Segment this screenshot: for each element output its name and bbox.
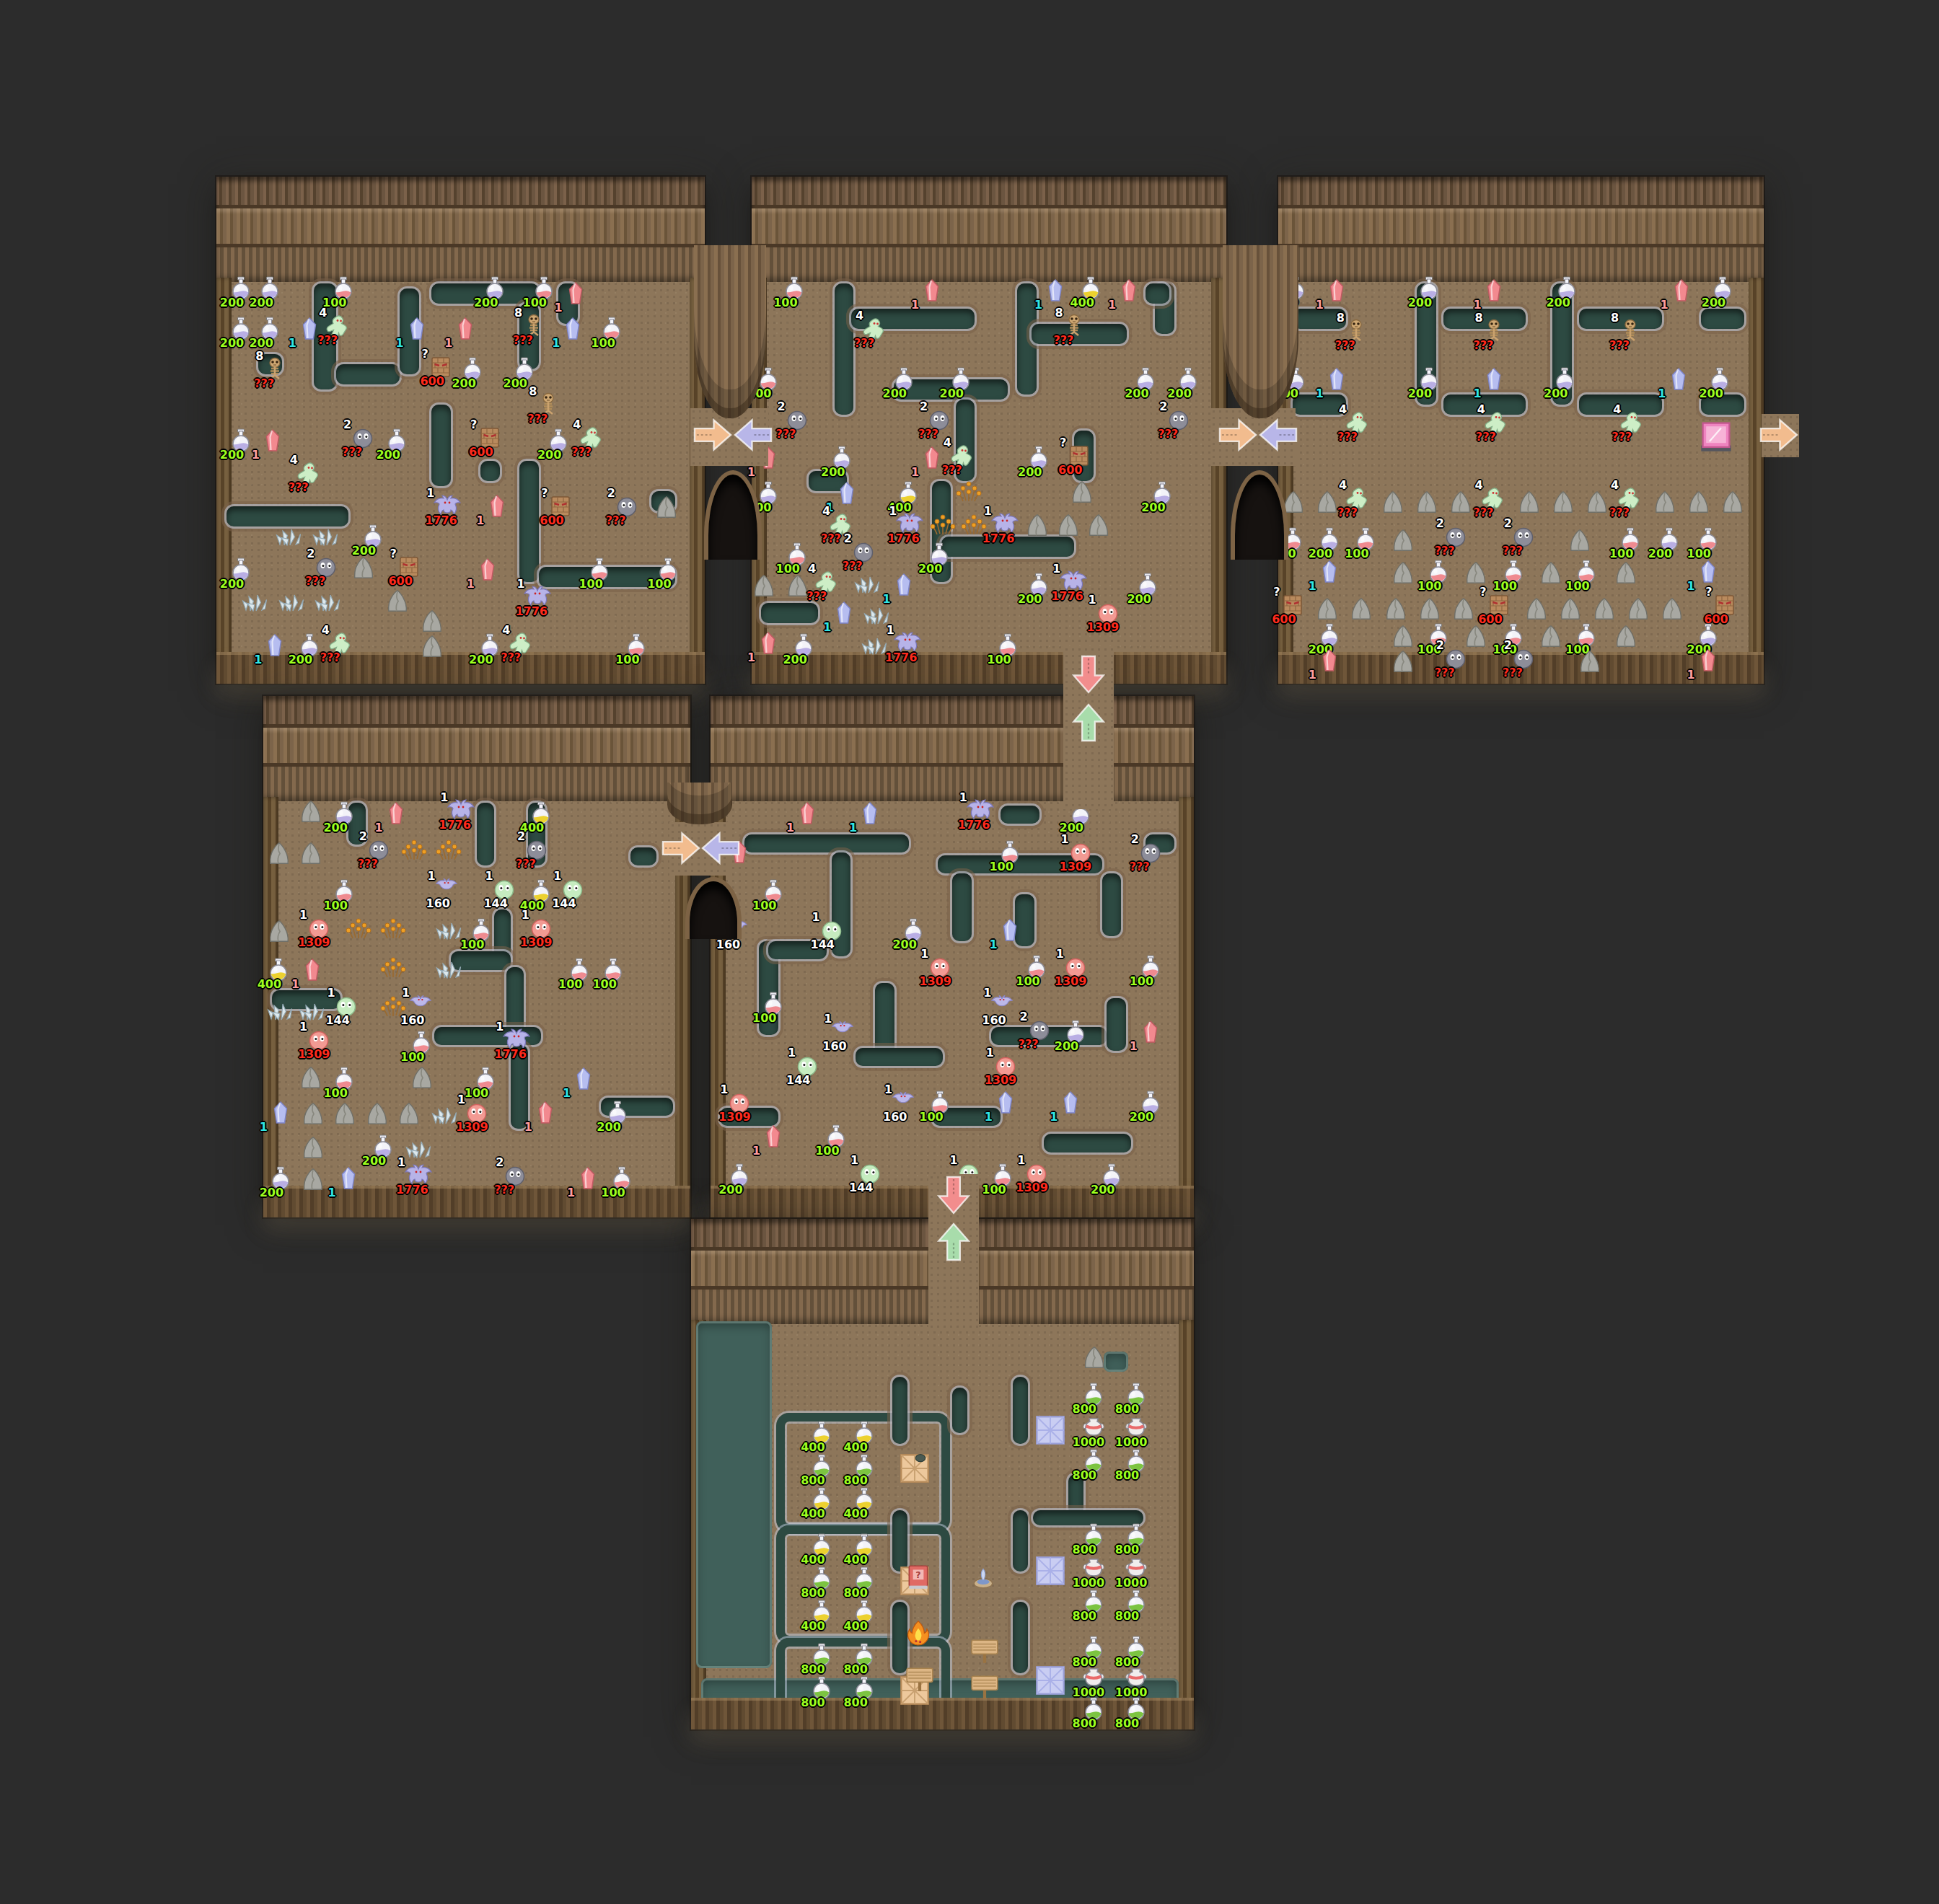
small-bat[interactable]: 1160 (830, 1019, 856, 1045)
red-crystal[interactable]: 1 (1481, 278, 1507, 304)
yellow-potion[interactable]: 400 (851, 1599, 877, 1625)
orange-mushrooms[interactable] (954, 478, 980, 504)
item-value-label: 200 (918, 563, 942, 575)
passage-arrow-left[interactable] (733, 415, 773, 455)
pink-ghost[interactable]: 11309 (1068, 839, 1094, 865)
pink-ghost[interactable]: 11309 (927, 954, 953, 980)
item-value-label: 1 (444, 338, 452, 349)
red-crystal[interactable]: 1 (299, 957, 325, 983)
item-value-label: 1 (327, 1187, 335, 1199)
passage-arrow-right[interactable] (661, 828, 701, 868)
item-value-label: 200 (1125, 388, 1148, 400)
big-bat[interactable]: 11776 (447, 798, 472, 824)
purple-potion[interactable]: 200 (891, 366, 917, 392)
wooden-sign[interactable] (905, 1665, 931, 1691)
red-potion[interactable]: 100 (600, 957, 626, 983)
red-potion[interactable]: 100 (1500, 559, 1526, 585)
blue-crystal[interactable]: 1 (831, 600, 857, 626)
red-crystal[interactable]: 1 (383, 801, 409, 827)
item-value-label: 800 (1073, 1403, 1096, 1415)
pink-ghost[interactable]: 11309 (726, 1090, 752, 1116)
red-crystal[interactable]: 1 (919, 278, 945, 304)
green-potion[interactable]: 800 (1081, 1589, 1107, 1615)
red-crystal[interactable]: 1 (1695, 648, 1721, 674)
red-potion[interactable]: 100 (586, 557, 612, 583)
item-value-label: 1 (849, 822, 857, 834)
zombie[interactable]: 4??? (1619, 410, 1645, 436)
rock (350, 554, 376, 580)
red-crystal[interactable]: 1 (563, 281, 589, 307)
red-crystal[interactable]: 1 (484, 493, 510, 519)
crystal-cluster[interactable] (313, 587, 339, 613)
zombie[interactable]: 4??? (1484, 410, 1510, 436)
red-potion[interactable]: 100 (781, 276, 807, 301)
green-potion[interactable]: 800 (809, 1675, 835, 1701)
purple-potion[interactable]: 200 (1135, 572, 1161, 598)
purple-potion[interactable]: 200 (360, 524, 386, 550)
big-bat[interactable]: 11776 (523, 584, 549, 610)
crystal-cluster[interactable] (860, 630, 886, 656)
red-potion[interactable]: 100 (1138, 954, 1164, 980)
red-jar[interactable]: 1000 (1081, 1556, 1107, 1582)
purple-potion[interactable]: 200 (829, 445, 855, 471)
purple-potion[interactable]: 200 (228, 557, 254, 583)
purple-potion[interactable]: 200 (1554, 276, 1580, 301)
big-bat[interactable]: 11776 (966, 798, 992, 824)
rock (1389, 559, 1415, 585)
red-crystal[interactable]: 1 (260, 428, 286, 454)
rock (1389, 648, 1415, 674)
palisade-band (711, 728, 1194, 767)
red-potion[interactable]: 100 (609, 1165, 635, 1191)
purple-potion[interactable]: 200 (755, 480, 781, 506)
item-value-label: 100 (592, 979, 616, 990)
crystal-cluster[interactable] (311, 521, 337, 547)
green-potion[interactable]: 800 (1081, 1635, 1107, 1661)
green-slime[interactable]: 1144 (794, 1053, 820, 1079)
red-potion[interactable]: 100 (760, 878, 786, 904)
purple-potion[interactable]: 200 (1656, 526, 1682, 552)
green-slime[interactable]: 1144 (491, 876, 517, 902)
green-potion[interactable]: 800 (809, 1453, 835, 1479)
pink-ghost[interactable]: 11309 (528, 915, 554, 941)
red-crystal[interactable]: 1 (452, 316, 478, 342)
item-value-label: 1 (1316, 388, 1324, 400)
pink-ghost[interactable]: 11309 (993, 1053, 1019, 1079)
orange-mushrooms[interactable] (379, 954, 405, 980)
zombie[interactable]: 4??? (325, 313, 351, 339)
purple-potion[interactable]: 200 (1707, 366, 1733, 392)
purple-potion[interactable]: 200 (948, 366, 974, 392)
red-potion[interactable]: 100 (330, 276, 356, 301)
green-potion[interactable]: 800 (851, 1453, 877, 1479)
crystal-cluster[interactable] (434, 915, 460, 941)
red-potion[interactable]: 100 (927, 1090, 953, 1116)
orange-mushrooms[interactable] (379, 915, 405, 941)
red-jar[interactable]: 1000 (1123, 1665, 1149, 1691)
blue-crystal[interactable]: 1 (560, 316, 586, 342)
crystal-cluster[interactable] (274, 521, 300, 547)
wooden-sign[interactable] (969, 1673, 995, 1699)
purple-potion[interactable]: 200 (791, 633, 817, 658)
item-value-label: 800 (1115, 1544, 1139, 1556)
skeleton[interactable]: 8??? (1343, 318, 1369, 344)
green-slime[interactable]: 1144 (857, 1160, 883, 1186)
passage-arrow-down[interactable] (1068, 654, 1109, 695)
purple-potion[interactable]: 200 (900, 917, 926, 943)
red-jar[interactable]: 1000 (1123, 1556, 1149, 1582)
skeleton[interactable]: 8??? (1481, 318, 1507, 344)
blue-crystal[interactable]: 1 (1316, 559, 1342, 585)
purple-potion[interactable]: 200 (1316, 622, 1342, 648)
pink-ghost[interactable]: 11309 (1024, 1160, 1050, 1186)
green-slime[interactable]: 1144 (560, 876, 586, 902)
red-potion[interactable]: 100 (531, 276, 557, 301)
item-value-label: 800 (1115, 1470, 1139, 1481)
purple-potion[interactable]: 200 (482, 276, 508, 301)
orange-mushrooms[interactable] (928, 511, 954, 537)
red-potion[interactable]: 100 (655, 557, 681, 583)
skeleton[interactable]: 8??? (535, 392, 561, 418)
wooden-sign[interactable] (969, 1637, 995, 1663)
rock-monster[interactable]: 2??? (524, 837, 550, 863)
red-potion[interactable]: 100 (1573, 622, 1599, 648)
rock-monster[interactable]: 2??? (1138, 839, 1164, 865)
red-potion[interactable]: 100 (1573, 559, 1599, 585)
purple-potion[interactable]: 200 (257, 276, 283, 301)
yellow-potion[interactable]: 400 (851, 1486, 877, 1512)
zombie[interactable]: 4??? (1481, 485, 1507, 511)
red-crystal[interactable]: 1 (794, 801, 820, 827)
purple-potion[interactable]: 200 (1149, 480, 1175, 506)
yellow-potion[interactable]: 400 (809, 1533, 835, 1559)
stone-face[interactable]: ?600 (1712, 592, 1738, 618)
red-potion[interactable]: 100 (331, 1066, 357, 1092)
purple-potion[interactable]: 200 (1063, 1019, 1089, 1045)
red-crystal[interactable]: 1 (1138, 1019, 1164, 1045)
stone-face[interactable]: ?600 (428, 354, 454, 380)
rock-monster[interactable]: 2??? (1443, 645, 1469, 671)
yellow-potion[interactable]: 400 (265, 957, 291, 983)
stone-face[interactable]: ?600 (1280, 592, 1306, 618)
green-potion[interactable]: 800 (851, 1675, 877, 1701)
small-bat[interactable]: 1160 (990, 993, 1016, 1019)
blue-crystal[interactable]: 1 (1324, 366, 1350, 392)
zombie[interactable]: 4??? (950, 443, 976, 469)
red-potion[interactable]: 100 (1425, 559, 1451, 585)
red-potion[interactable]: 100 (472, 1066, 498, 1092)
skeleton[interactable]: 8??? (262, 356, 288, 382)
zombie[interactable]: 4??? (862, 316, 888, 342)
red-potion[interactable]: 100 (599, 316, 625, 342)
green-potion[interactable]: 800 (1081, 1522, 1107, 1548)
blue-crystal[interactable]: 1 (335, 1165, 361, 1191)
purple-potion[interactable]: 200 (296, 633, 322, 658)
blue-crystal[interactable]: 1 (891, 572, 917, 598)
skeleton[interactable]: 8??? (1617, 318, 1643, 344)
red-potion[interactable]: 100 (990, 1163, 1016, 1189)
passage-arrow-left[interactable] (1258, 415, 1298, 455)
purple-potion[interactable]: 200 (511, 356, 537, 382)
red-potion[interactable]: 100 (408, 1030, 434, 1056)
purple-potion[interactable]: 200 (384, 428, 410, 454)
pink-ghost[interactable]: 11309 (306, 1027, 332, 1053)
red-potion[interactable]: 100 (784, 542, 810, 568)
rock-monster[interactable]: 2??? (926, 407, 952, 433)
red-potion[interactable]: 100 (468, 917, 494, 943)
purple-potion[interactable]: 200 (460, 356, 485, 382)
blue-crystal[interactable]: 1 (1666, 366, 1692, 392)
purple-potion[interactable]: 200 (477, 633, 503, 658)
red-crystal[interactable]: 1 (532, 1100, 558, 1126)
item-value-label: 100 (591, 338, 615, 349)
item-value-label: ??? (571, 446, 592, 458)
zombie[interactable]: 4??? (814, 569, 840, 595)
purple-potion[interactable]: 200 (1099, 1163, 1125, 1189)
crystal-cluster[interactable] (430, 1100, 456, 1126)
red-jar[interactable]: 1000 (1123, 1415, 1149, 1441)
big-bat[interactable]: 11776 (893, 630, 919, 656)
stone-face[interactable]: ?600 (548, 493, 573, 519)
rock-monster[interactable]: 2??? (502, 1163, 528, 1189)
small-bat[interactable]: 1160 (408, 993, 434, 1019)
blue-crystal[interactable]: 1 (1042, 278, 1068, 304)
green-potion[interactable]: 800 (1123, 1635, 1149, 1661)
rock-monster[interactable]: 2??? (784, 407, 810, 433)
green-potion[interactable]: 800 (1123, 1382, 1149, 1408)
big-bat[interactable]: 11776 (895, 511, 921, 537)
purple-potion[interactable]: 200 (1316, 526, 1342, 552)
orange-mushrooms[interactable] (959, 511, 985, 537)
purple-potion[interactable]: 200 (257, 316, 283, 342)
red-potion[interactable]: 100 (823, 1124, 849, 1150)
blue-crystal[interactable]: 1 (1058, 1090, 1083, 1116)
small-bat[interactable]: 1160 (891, 1090, 917, 1116)
green-potion[interactable]: 800 (1123, 1696, 1149, 1722)
stone-face[interactable]: ?600 (1066, 443, 1092, 469)
pink-ghost[interactable]: 11309 (1095, 600, 1121, 626)
rock-monster[interactable]: 2??? (350, 425, 376, 451)
red-potion[interactable]: 100 (1617, 526, 1643, 552)
purple-potion[interactable]: 200 (1552, 366, 1578, 392)
blue-crystal[interactable]: 1 (1695, 559, 1721, 585)
rock-monster[interactable]: 2??? (366, 837, 392, 863)
crystal-cluster[interactable] (265, 996, 291, 1022)
purple-potion[interactable]: 200 (1138, 1090, 1164, 1116)
blue-crystal[interactable]: 1 (404, 316, 430, 342)
orange-mushrooms[interactable] (400, 837, 426, 863)
campfire[interactable] (905, 1619, 931, 1645)
purple-potion[interactable]: 200 (1695, 622, 1721, 648)
green-slime[interactable]: 1144 (819, 917, 845, 943)
rock-monster[interactable]: 2??? (1166, 407, 1192, 433)
green-potion[interactable]: 800 (1123, 1589, 1149, 1615)
crystal-cluster[interactable] (862, 600, 888, 626)
red-crystal[interactable]: 1 (760, 1124, 786, 1150)
purple-potion[interactable]: 200 (370, 1134, 396, 1160)
red-crystal[interactable]: 1 (575, 1165, 601, 1191)
orange-mushrooms[interactable] (344, 915, 370, 941)
purple-potion[interactable]: 200 (1416, 366, 1442, 392)
green-potion[interactable]: 800 (809, 1642, 835, 1668)
zombie[interactable]: 4??? (1345, 485, 1371, 511)
trench-wall (477, 803, 494, 865)
purple-potion[interactable]: 200 (1416, 276, 1442, 301)
blue-crystal[interactable]: 1 (834, 480, 860, 506)
purple-potion[interactable]: 200 (1026, 445, 1052, 471)
question-book[interactable]: ? (905, 1564, 931, 1590)
red-potion[interactable]: 100 (995, 633, 1021, 658)
yellow-potion[interactable]: 400 (809, 1599, 835, 1625)
yellow-potion[interactable]: 400 (528, 878, 554, 904)
yellow-potion[interactable]: 400 (895, 480, 921, 506)
crystal-cluster[interactable] (277, 587, 303, 613)
pink-portal[interactable] (1700, 420, 1725, 446)
rock-monster[interactable]: 2??? (1511, 524, 1536, 550)
big-bat[interactable]: 11776 (433, 493, 459, 519)
item-value-label: 1 (747, 467, 755, 478)
big-bat[interactable]: 11776 (990, 511, 1016, 537)
red-potion[interactable]: 100 (623, 633, 649, 658)
red-crystal[interactable]: 1 (1316, 648, 1342, 674)
blue-crystal[interactable]: 1 (1481, 366, 1507, 392)
zombie[interactable]: 4??? (1345, 410, 1371, 436)
big-bat[interactable]: 11776 (404, 1163, 430, 1189)
purple-potion[interactable]: 200 (545, 428, 571, 454)
passage-arrow-up[interactable] (933, 1222, 974, 1262)
fountain[interactable] (969, 1564, 995, 1590)
purple-potion[interactable]: 200 (331, 801, 357, 827)
yellow-potion[interactable]: 400 (809, 1420, 835, 1446)
red-potion[interactable]: 100 (1024, 954, 1050, 980)
zombie[interactable]: 4??? (509, 630, 535, 656)
blue-door[interactable] (1035, 1556, 1061, 1582)
orange-mushrooms[interactable] (434, 837, 460, 863)
red-potion[interactable]: 100 (566, 957, 592, 983)
blue-crystal[interactable]: 1 (571, 1066, 597, 1092)
red-potion[interactable]: 100 (1353, 526, 1379, 552)
passage-arrow-right[interactable] (1759, 415, 1799, 455)
red-jar[interactable]: 1000 (1081, 1665, 1107, 1691)
zombie[interactable]: 4??? (1617, 485, 1643, 511)
pink-ghost[interactable]: 11309 (1063, 954, 1089, 980)
red-crystal[interactable]: 1 (1668, 278, 1694, 304)
stone-face[interactable]: ?600 (477, 425, 503, 451)
rock-monster[interactable]: 2??? (1511, 645, 1536, 671)
red-potion[interactable]: 100 (760, 991, 786, 1017)
crystal-cluster[interactable] (404, 1134, 430, 1160)
purple-potion[interactable]: 200 (1026, 572, 1052, 598)
passage-arrow-right[interactable] (1218, 415, 1258, 455)
blue-crystal[interactable]: 1 (857, 801, 883, 827)
red-crystal[interactable]: 1 (919, 445, 945, 471)
red-potion[interactable]: 100 (331, 878, 357, 904)
green-potion[interactable]: 800 (809, 1566, 835, 1592)
big-bat[interactable]: 11776 (502, 1027, 528, 1053)
item-value-label: 1 (467, 578, 475, 590)
small-bat[interactable]: 1160 (434, 876, 460, 902)
green-potion[interactable]: 800 (851, 1642, 877, 1668)
green-potion[interactable]: 800 (1081, 1382, 1107, 1408)
stone-face[interactable]: ?600 (396, 554, 422, 580)
rock (1523, 595, 1549, 621)
yellow-potion[interactable]: 400 (809, 1486, 835, 1512)
red-crystal[interactable]: 1 (755, 630, 781, 656)
passage-arrow-left[interactable] (700, 828, 741, 868)
passage-arrow-up[interactable] (1068, 702, 1109, 743)
green-potion[interactable]: 800 (1081, 1696, 1107, 1722)
green-potion[interactable]: 800 (851, 1566, 877, 1592)
rock-monster[interactable]: 2??? (1443, 524, 1469, 550)
rock-monster[interactable]: 2??? (313, 554, 339, 580)
red-potion[interactable]: 100 (1695, 526, 1721, 552)
yellow-potion[interactable]: 400 (851, 1420, 877, 1446)
rock-monster[interactable]: 2??? (850, 539, 876, 565)
red-potion[interactable]: 100 (997, 839, 1023, 865)
palisade-wall (216, 177, 705, 282)
blue-door[interactable] (1035, 1665, 1061, 1691)
purple-potion[interactable]: 200 (268, 1165, 294, 1191)
zombie[interactable]: 4??? (579, 425, 605, 451)
purple-potion[interactable]: 200 (604, 1100, 630, 1126)
passage-arrow-down[interactable] (933, 1175, 974, 1215)
purple-potion[interactable]: 200 (1175, 366, 1201, 392)
blue-door[interactable] (1035, 1415, 1061, 1441)
purple-potion[interactable]: 200 (726, 1163, 752, 1189)
green-potion[interactable]: 800 (1123, 1448, 1149, 1474)
item-value-label: 100 (1565, 581, 1589, 592)
stone-face[interactable]: ?600 (1486, 592, 1512, 618)
yellow-potion[interactable]: 400 (528, 801, 554, 827)
map-panel-top-right: 2001200120012008???8???8???2001200120012… (1278, 177, 1764, 684)
yellow-potion[interactable]: 400 (851, 1533, 877, 1559)
rock (1537, 559, 1563, 585)
blue-crystal[interactable]: 1 (268, 1100, 294, 1126)
crystal-cluster[interactable] (297, 996, 323, 1022)
item-value-label: 400 (843, 1621, 867, 1632)
red-crystal[interactable]: 1 (475, 557, 501, 583)
purple-potion[interactable]: 200 (1710, 276, 1736, 301)
skeleton[interactable]: 8??? (1061, 313, 1087, 339)
palisade-tongue (667, 783, 732, 824)
red-crystal[interactable]: 1 (1116, 278, 1142, 304)
crystal-cluster[interactable] (853, 569, 879, 595)
skeleton[interactable]: 8??? (521, 313, 547, 339)
blue-crystal[interactable]: 1 (997, 917, 1023, 943)
crystal-cluster[interactable] (434, 954, 460, 980)
green-slime[interactable]: 1144 (333, 993, 359, 1019)
pink-ghost[interactable]: 11309 (464, 1100, 490, 1126)
red-jar[interactable]: 1000 (1081, 1415, 1107, 1441)
blue-crystal[interactable]: 1 (262, 633, 288, 658)
rock-monster[interactable]: 2??? (614, 493, 640, 519)
purple-potion[interactable]: 200 (926, 542, 952, 568)
crystal-cluster[interactable] (240, 587, 266, 613)
zombie[interactable]: 4??? (328, 630, 354, 656)
red-crystal[interactable]: 1 (1324, 278, 1350, 304)
big-bat[interactable]: 11776 (1059, 569, 1085, 595)
purple-potion[interactable]: 200 (1133, 366, 1158, 392)
green-potion[interactable]: 800 (1081, 1448, 1107, 1474)
green-potion[interactable]: 800 (1123, 1522, 1149, 1548)
blue-crystal[interactable]: 1 (993, 1090, 1019, 1116)
pink-ghost[interactable]: 11309 (306, 915, 332, 941)
passage-arrow-right[interactable] (692, 415, 733, 455)
rock-monster[interactable]: 2??? (1026, 1017, 1052, 1043)
yellow-potion[interactable]: 400 (1078, 276, 1104, 301)
zombie[interactable]: 4??? (296, 460, 322, 486)
purple-potion[interactable]: 200 (228, 428, 254, 454)
